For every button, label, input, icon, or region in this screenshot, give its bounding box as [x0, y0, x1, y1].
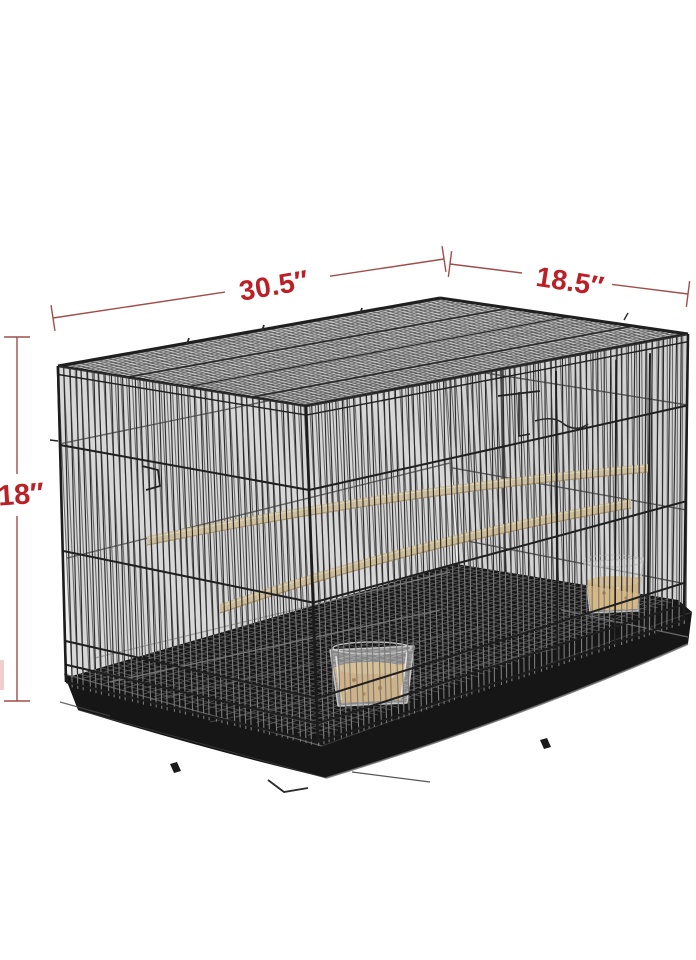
svg-text:18″: 18″ — [0, 477, 45, 512]
